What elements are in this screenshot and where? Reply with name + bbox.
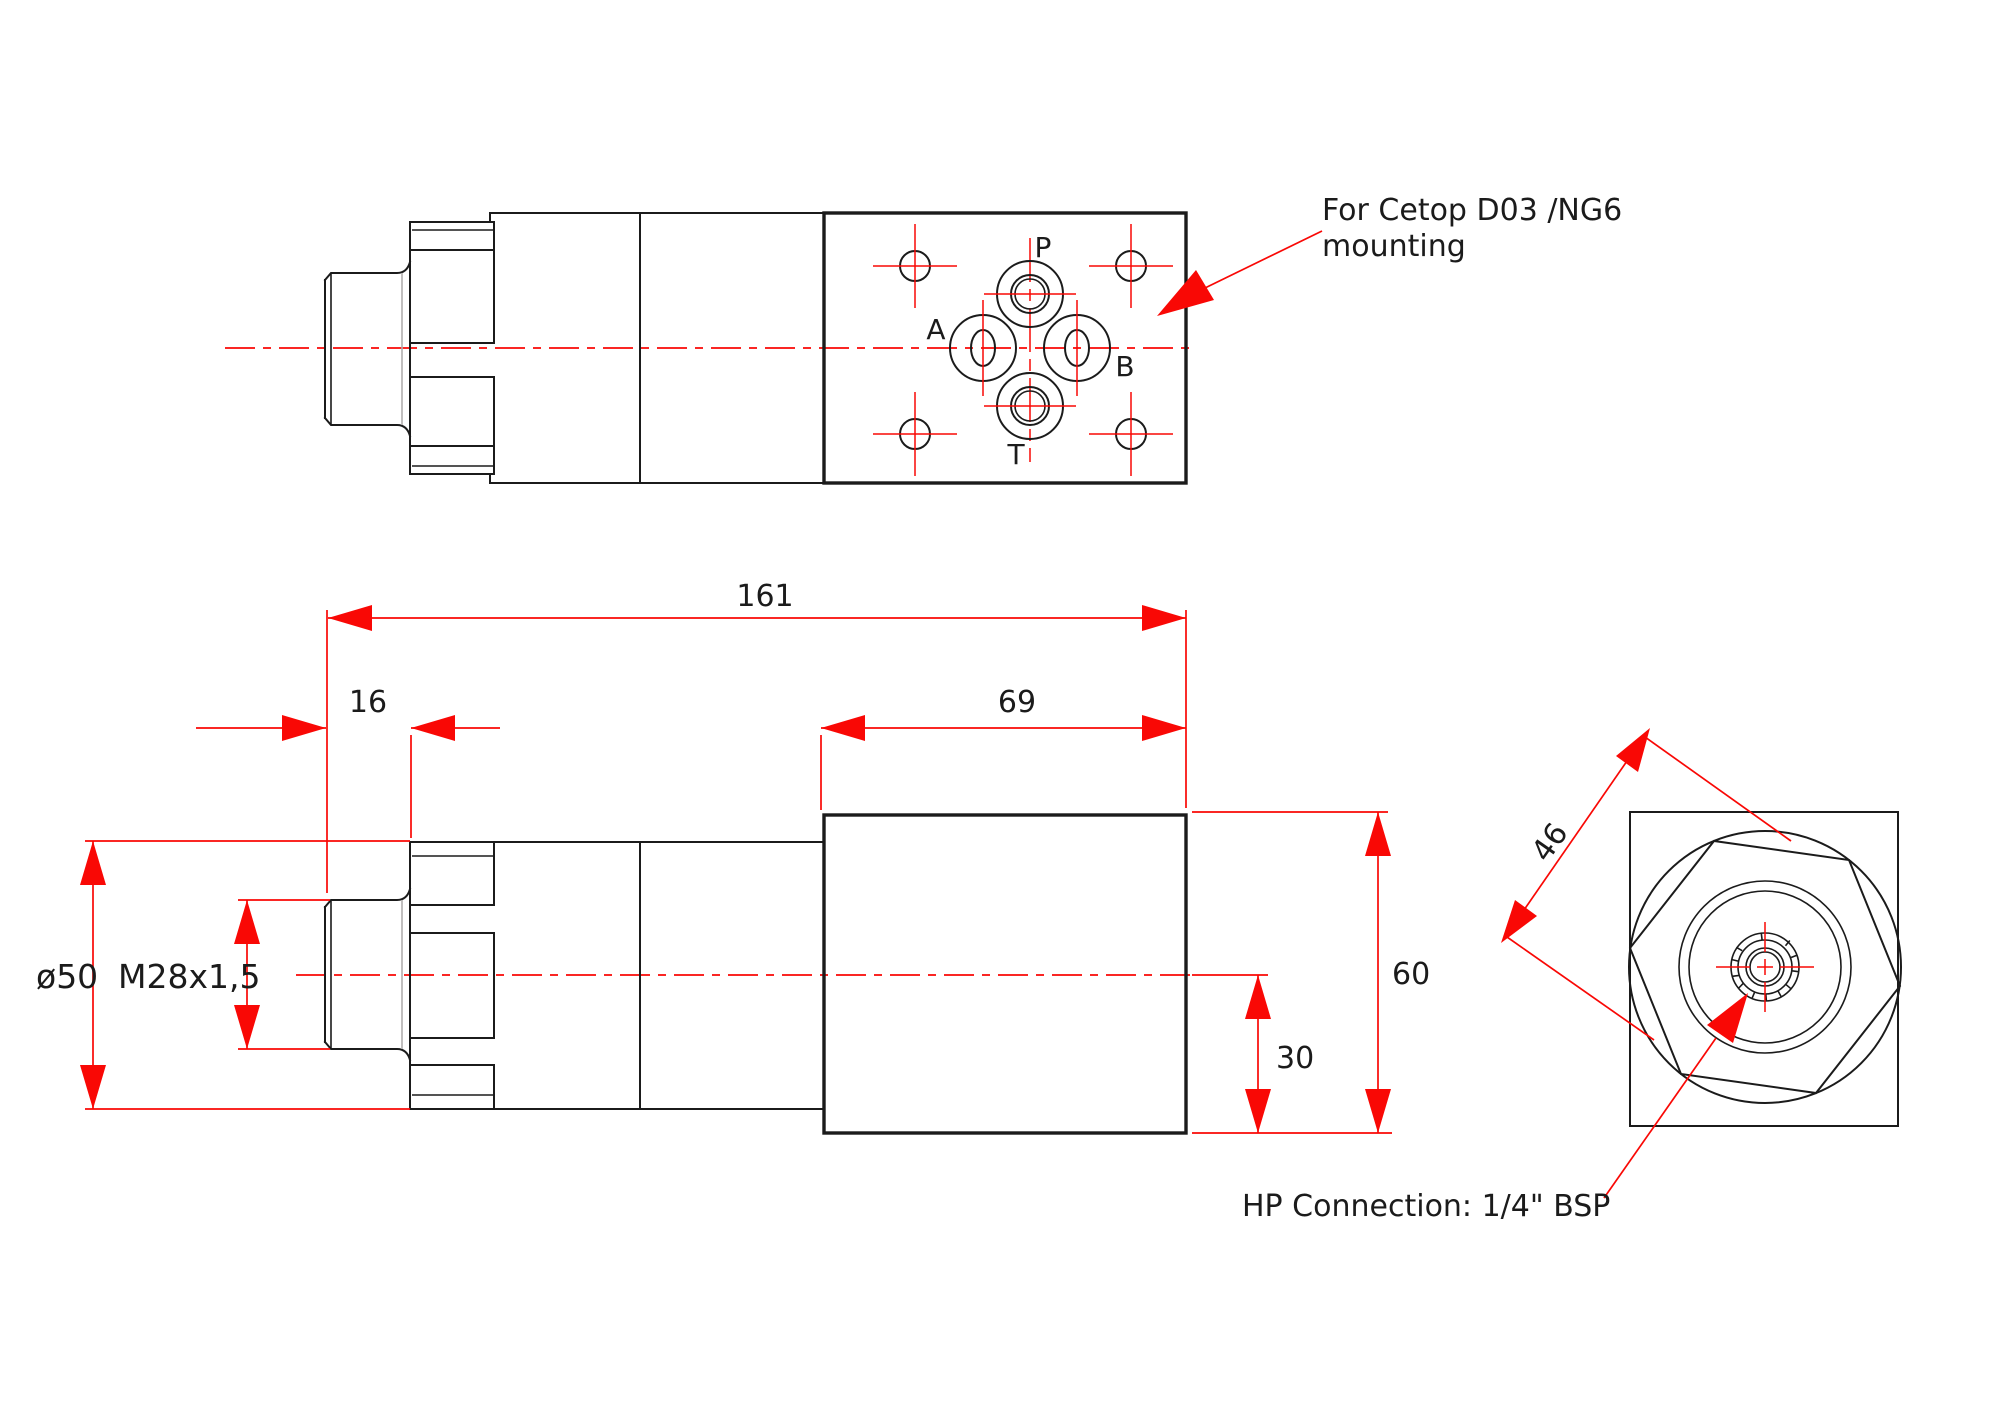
dim-16: 16: [196, 685, 500, 741]
mounting-note-line1: For Cetop D03 /NG6: [1322, 193, 1622, 228]
dim-60: 60: [1192, 812, 1430, 1133]
hex-nut-face: [1629, 831, 1901, 1103]
solenoid-block: [824, 815, 1186, 1133]
port-a-label: A: [926, 313, 945, 346]
port-b-label: B: [1115, 350, 1134, 383]
dim-60-label: 60: [1392, 957, 1430, 992]
bottom-view: ø50 M28x1,5 60 30: [36, 812, 1430, 1133]
dim-46: 46: [1501, 728, 1791, 1040]
port-t-label: T: [1006, 438, 1025, 471]
hp-note-leader: [1604, 993, 1748, 1198]
horizontal-dimensions: 161 16 69: [196, 579, 1186, 893]
port-p-label: P: [1035, 231, 1052, 264]
dim-161-label: 161: [736, 579, 793, 614]
dim-d50-label: ø50: [36, 957, 98, 996]
bolt-hole-bottom-left: [873, 392, 957, 476]
technical-drawing-page: P A B T For Cetop D03 /NG6 mounting 161 …: [0, 0, 2000, 1414]
dim-69-label: 69: [998, 685, 1036, 720]
mounting-note-line2: mounting: [1322, 229, 1466, 264]
bolt-hole-top-left: [873, 224, 957, 308]
end-view: 46 HP Connection: 1/4" BSP: [1242, 728, 1901, 1224]
dim-30: 30: [1192, 975, 1314, 1133]
mounting-note-leader: [1157, 231, 1322, 316]
end-view-body: [1630, 812, 1898, 1126]
dim-m28-label: M28x1,5: [118, 957, 260, 996]
bolt-hole-top-right: [1089, 224, 1173, 308]
dim-30-label: 30: [1276, 1041, 1314, 1076]
hp-connection-note: HP Connection: 1/4" BSP: [1242, 1189, 1610, 1224]
dim-161: 161: [328, 579, 1186, 631]
plug-side-view-top: [325, 262, 410, 436]
dim-16-label: 16: [349, 685, 387, 720]
dim-69: 69: [821, 685, 1186, 741]
dim-46-label: 46: [1525, 817, 1576, 868]
valve-drawing-svg: P A B T For Cetop D03 /NG6 mounting 161 …: [0, 0, 2000, 1414]
top-view: P A B T For Cetop D03 /NG6 mounting: [225, 193, 1622, 483]
bolt-hole-bottom-right: [1089, 392, 1173, 476]
